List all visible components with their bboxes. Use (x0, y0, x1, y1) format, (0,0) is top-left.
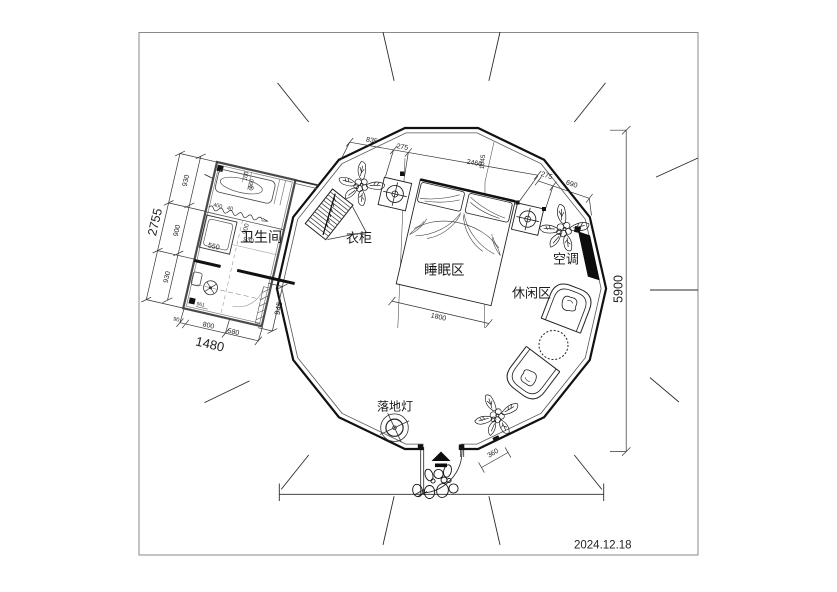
svg-text:落地灯: 落地灯 (377, 400, 413, 414)
svg-text:衣柜: 衣柜 (346, 231, 372, 246)
svg-text:1045: 1045 (479, 154, 487, 169)
svg-text:休闲区: 休闲区 (512, 286, 551, 301)
svg-text:空调: 空调 (553, 252, 579, 267)
svg-text:睡眠区: 睡眠区 (424, 263, 465, 278)
svg-text:2024.12.18: 2024.12.18 (574, 540, 632, 552)
svg-text:卫生间: 卫生间 (240, 229, 282, 245)
svg-text:5900: 5900 (612, 275, 626, 303)
